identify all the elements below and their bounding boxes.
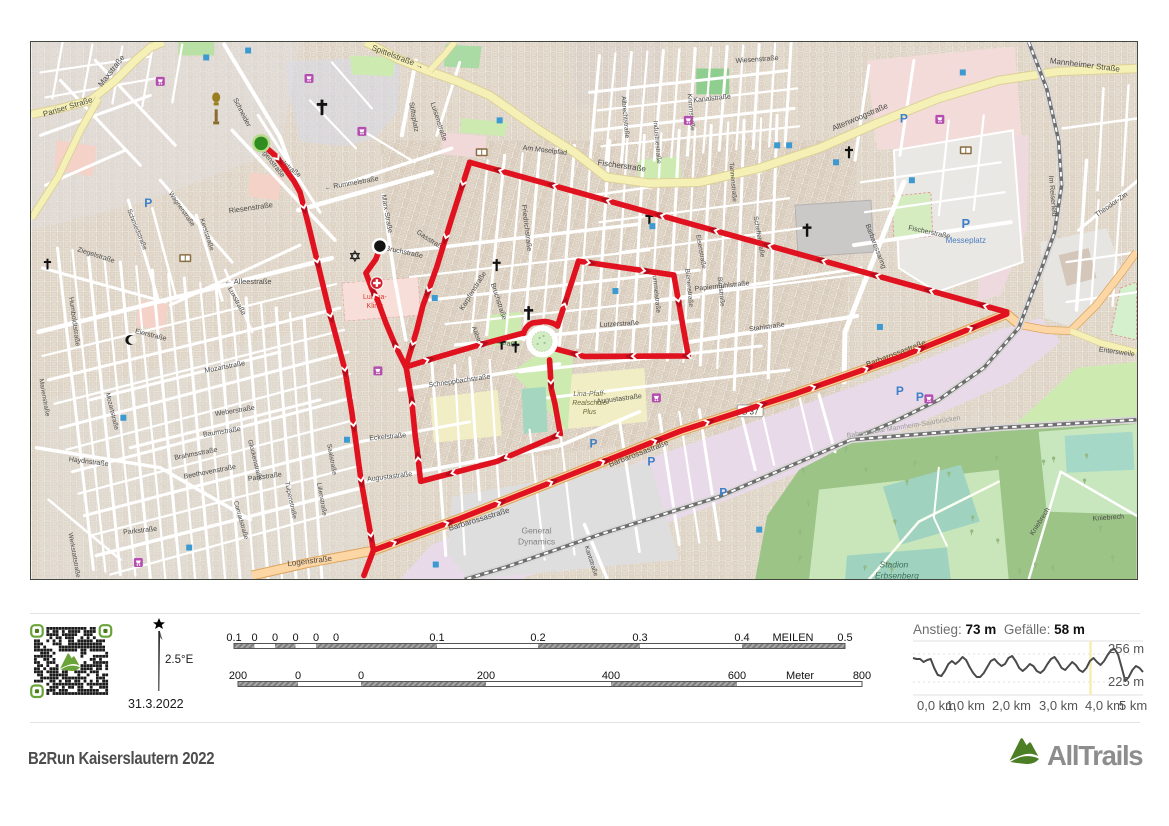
svg-text:0: 0 [292,632,298,644]
svg-text:Meter: Meter [786,670,814,682]
svg-text:Stadion: Stadion [880,560,909,570]
svg-text:Lina-Pfaff-: Lina-Pfaff- [573,391,606,398]
svg-text:2,0 km: 2,0 km [992,698,1031,713]
svg-text:1,0 km: 1,0 km [946,698,985,713]
svg-text:P: P [896,384,904,398]
svg-text:0.1: 0.1 [226,632,241,644]
svg-text:P: P [961,216,970,231]
svg-text:400: 400 [602,670,620,682]
svg-text:0.4: 0.4 [734,632,749,644]
svg-text:MEILEN: MEILEN [773,632,814,644]
svg-text:256 m: 256 m [1108,641,1144,656]
svg-text:AllTrails: AllTrails [1047,740,1143,771]
svg-text:Messeplatz: Messeplatz [946,236,986,245]
svg-text:200: 200 [477,670,495,682]
svg-text:P: P [916,390,924,404]
svg-text:0: 0 [295,670,301,682]
svg-text:Realschule: Realschule [572,400,607,407]
svg-text:0: 0 [272,632,278,644]
svg-text:0: 0 [358,670,364,682]
svg-text:P: P [589,437,597,451]
svg-text:5 km: 5 km [1119,698,1147,713]
svg-text:P: P [647,455,655,469]
svg-text:0: 0 [333,632,339,644]
svg-text:0.5: 0.5 [837,632,852,644]
svg-text:0: 0 [313,632,319,644]
svg-text:200: 200 [229,670,247,682]
svg-text:P: P [144,196,152,210]
svg-text:Erbsenberg: Erbsenberg [875,571,919,579]
svg-text:General: General [522,526,552,536]
svg-text:0.1: 0.1 [429,632,444,644]
svg-text:0.2: 0.2 [530,632,545,644]
svg-text:0.3: 0.3 [632,632,647,644]
svg-text:P: P [719,486,727,500]
svg-text:800: 800 [853,670,871,682]
svg-text:P: P [900,111,908,125]
svg-text:Plus: Plus [583,409,597,416]
svg-text:0: 0 [251,632,257,644]
svg-text:3,0 km: 3,0 km [1039,698,1078,713]
svg-text:Dynamics: Dynamics [518,537,555,547]
svg-text:600: 600 [728,670,746,682]
svg-text:← Alleestraße: ← Alleestraße [225,277,272,286]
svg-text:225 m: 225 m [1108,674,1144,689]
